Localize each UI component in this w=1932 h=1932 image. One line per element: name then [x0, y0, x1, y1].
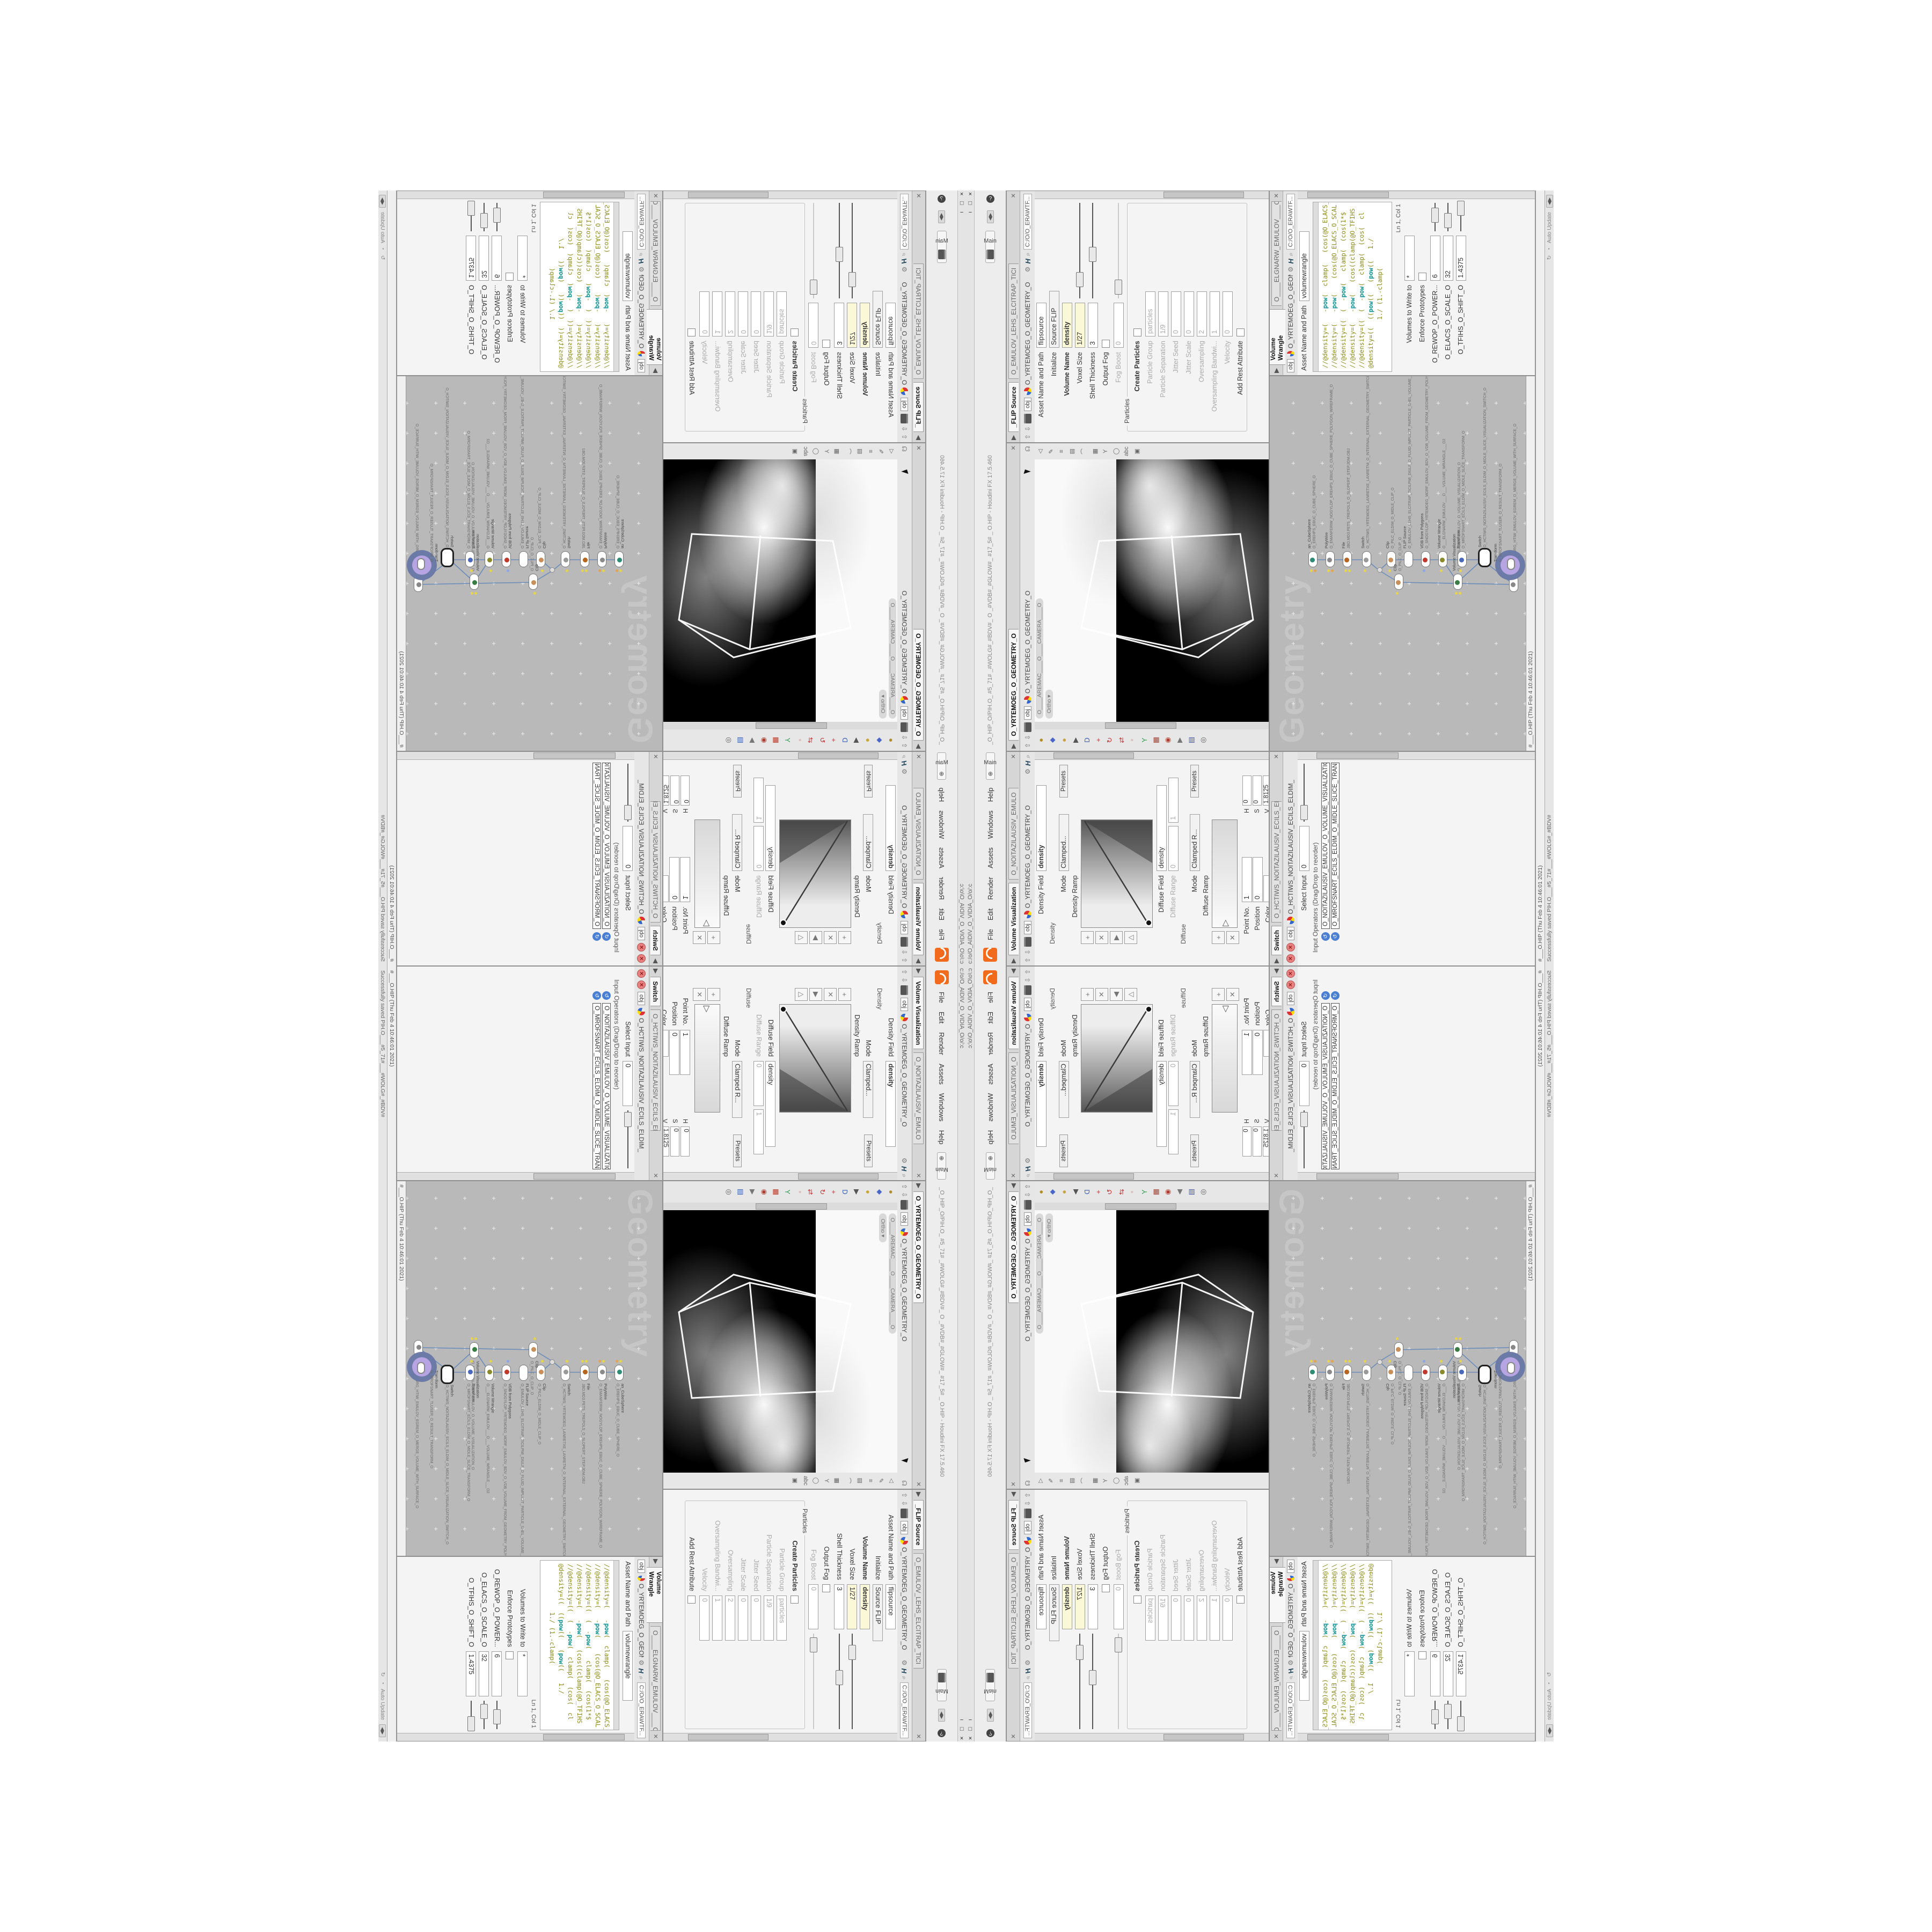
tab-switch[interactable]: Switch	[1271, 977, 1282, 1006]
display-option-icon[interactable]: abc	[802, 1476, 809, 1485]
param-slider[interactable]	[480, 1701, 488, 1729]
camera-selector[interactable]: O____AREMAC____O____CAMERA____O	[889, 598, 896, 719]
param-value-field[interactable]: 0	[751, 1596, 762, 1641]
density-mode-dropdown[interactable]: Clamped...	[863, 814, 874, 871]
tab-node-path[interactable]: O____ELGNARW_EMULOV____O	[651, 201, 661, 306]
presets-button[interactable]: Presets	[733, 765, 742, 797]
scrollbar[interactable]	[1035, 191, 1269, 199]
diffuse-mode-dropdown[interactable]: Clamped R...	[733, 1061, 743, 1118]
v-input[interactable]: 1.8125	[663, 1126, 669, 1157]
tab-node-path[interactable]: O_NOITAZILAUSIV_EMULO	[1008, 788, 1019, 879]
ramp-flip-button[interactable]: ▶	[809, 988, 822, 1001]
param-value-field[interactable]: particles	[777, 291, 787, 336]
density-ramp-gradient[interactable]	[779, 1004, 851, 1113]
viewport-tool-icon[interactable]: ▦	[1152, 1189, 1160, 1195]
network-node[interactable]: Volume WrangleO___ELGNARW_EMULOV___O___V…	[1438, 1365, 1447, 1381]
param-value-field[interactable]: 6	[492, 236, 502, 281]
viewport-tool-icon[interactable]: ▶	[1071, 1189, 1080, 1195]
context-badge[interactable]: obj	[1024, 921, 1031, 934]
display-option-icon[interactable]: ≡	[1058, 450, 1065, 453]
checkbox[interactable]	[1102, 1584, 1110, 1592]
reorder-icon[interactable]: ↺	[1321, 932, 1330, 941]
display-option-icon[interactable]: ▦	[1092, 449, 1099, 454]
viewport-tool-icon[interactable]: ▶	[1175, 737, 1184, 743]
reorder-icon[interactable]: ↺	[1331, 991, 1340, 1000]
pane-menu-icon[interactable]: ▶	[1009, 969, 1017, 974]
density-ramp-gradient[interactable]	[779, 819, 851, 928]
pin-icon[interactable]: ☊	[1024, 446, 1031, 452]
pane-arrows[interactable]: ◀▶	[987, 1709, 994, 1722]
cook-mode-icon[interactable]: ◔	[379, 247, 386, 251]
param-value-field[interactable]: 6	[1430, 1651, 1440, 1696]
viewport-tool-icon[interactable]: ●	[1037, 738, 1045, 742]
viewport-tool-icon[interactable]: Y	[1140, 738, 1148, 743]
menu-assets[interactable]: Assets	[986, 847, 994, 868]
menu-help[interactable]: Help	[938, 1130, 946, 1145]
network-node[interactable]: FLIP SourceO_EMULOV_LEHS_ELCITRAP_TICILP…	[1404, 551, 1413, 567]
menu-edit[interactable]: Edit	[986, 1012, 994, 1023]
help-icon[interactable]: ?	[986, 195, 994, 203]
ramp-add-point-button[interactable]: +	[1212, 931, 1225, 944]
network-node[interactable]: FLIP SourceO_EMULOV_LEHS_ELCITRAP_TICILP…	[519, 1365, 528, 1381]
pane-menu-icon[interactable]: ▶	[652, 368, 660, 373]
param-value-field[interactable]: 0	[809, 303, 819, 348]
param-value-field[interactable]: 1	[713, 1596, 723, 1641]
network-editor-pane[interactable]: Geometry +++++++++++++++++++++++++++++++…	[397, 1181, 663, 1556]
network-node[interactable]: ClipO_PILC_O_CLIP_O	[1394, 1342, 1403, 1358]
asset-path-field[interactable]: C:/O/O_ERAWTF...	[637, 1682, 646, 1738]
viewport-tool-icon[interactable]: ◉	[1163, 737, 1172, 743]
up-arrow-icon[interactable]: ⇧	[901, 434, 908, 440]
viewport-scrollbar[interactable]	[663, 721, 897, 729]
param-slider[interactable]	[1457, 1701, 1465, 1729]
asset-path-field[interactable]: C:/O/O_ERAWTF...	[637, 194, 646, 250]
code-scrollbar[interactable]	[613, 1561, 619, 1730]
network-node[interactable]: SwitchO_HCTIWS_YRTEMOEG_LANRETXE_LANRETN…	[561, 1365, 570, 1381]
cook-mode-icon[interactable]: ◔	[1546, 247, 1553, 251]
pane-close-icon[interactable]: ✕	[1273, 1734, 1280, 1739]
up-arrow-icon[interactable]: ⇧	[901, 743, 908, 748]
scrollbar[interactable]	[1298, 1172, 1535, 1180]
network-node[interactable]	[1377, 1359, 1382, 1365]
select-input-field[interactable]: 0	[623, 826, 633, 871]
density-mode-dropdown[interactable]: Clamped...	[1059, 814, 1069, 871]
param-slider[interactable]	[1088, 203, 1097, 298]
reorder-icon[interactable]: ↺	[1331, 932, 1340, 941]
gear-icon[interactable]: ⚙	[901, 769, 908, 774]
tab-volume-wrangle[interactable]: Volume Wrangle	[1269, 1567, 1285, 1623]
param-value-field[interactable]: 1/9	[1158, 291, 1168, 336]
up-arrow-icon[interactable]: ⇧	[901, 1184, 908, 1189]
tab-volume-visualization[interactable]: Volume Visualization	[1008, 883, 1019, 955]
network-node[interactable]: SwitchO_HCTIWS_YRTEMOEG_LANRETXE_LANRETN…	[561, 551, 570, 567]
viewport-tool-icon[interactable]: ⇄	[806, 737, 815, 743]
viewport-tool-icon[interactable]: ▶	[1071, 737, 1080, 743]
checkbox[interactable]	[791, 1596, 799, 1604]
viewport-tool-icon[interactable]: ◉	[760, 1189, 769, 1195]
network-node[interactable]: Volume VisualizationO_NOITAZILAUSIV_EMUL…	[470, 574, 479, 590]
ramp-delete-point-button[interactable]: ✕	[824, 931, 837, 944]
position-input[interactable]: 0	[670, 1030, 680, 1075]
auto-update-mode[interactable]: Auto Update	[379, 212, 386, 243]
minimize-button[interactable]: −	[968, 209, 971, 215]
tab-node-path[interactable]: O____ELGNARW_EMULOV____O	[1271, 1626, 1282, 1731]
param-value-field[interactable]: 1	[1210, 1596, 1220, 1641]
param-value-field[interactable]: 3	[835, 303, 845, 348]
select-input-field[interactable]: 0	[1299, 1061, 1309, 1106]
viewport-tool-icon[interactable]: +	[830, 738, 838, 742]
camera-selector[interactable]: O____AREMAC____O____CAMERA____O	[1036, 598, 1043, 719]
pane-close-icon[interactable]: ✕	[1010, 1173, 1017, 1178]
asset-path-field[interactable]: C:/O/O_ERAWTF...	[1023, 1682, 1032, 1738]
scrollbar[interactable]	[1298, 1733, 1535, 1741]
viewport-tool-icon[interactable]: ↻	[1106, 1189, 1114, 1195]
presets-button[interactable]: Presets	[733, 1135, 742, 1167]
point-no-input[interactable]: 1	[680, 857, 691, 902]
presets-button[interactable]: Presets	[1190, 1135, 1199, 1167]
diffuse-ramp-widget[interactable]: + ✕ ▷	[1212, 764, 1239, 944]
checkbox[interactable]	[688, 328, 696, 336]
network-node[interactable]: TransformO_MROFSNART_ECILS_ELDIM_O_MIDLE…	[1458, 551, 1467, 567]
viewport-tool-icon[interactable]: ▶	[748, 737, 757, 743]
pane-menu-icon[interactable]: ▶	[1272, 969, 1280, 974]
diffuse-ramp-gradient[interactable]: ▷	[694, 819, 720, 928]
ramp-add-point-button[interactable]: +	[1081, 988, 1094, 1001]
asset-name-field[interactable]: volumewrangle	[1299, 1631, 1309, 1701]
network-node[interactable]: TransformO_MROFSNART_ECILS_ELDIM_O_MIDLE…	[465, 551, 474, 567]
desktop-selector[interactable]: Main	[937, 1669, 947, 1701]
network-node[interactable]: Volume WrangleO___ELGNARW_EMULOV___O___V…	[485, 1365, 494, 1381]
param-value-field[interactable]: 0	[751, 291, 762, 336]
input-operator-item[interactable]: ↺O_MROFSNART_ECILS_ELDIM_O_MIDLE_SLICE_T…	[592, 991, 601, 1173]
viewport-render-area[interactable]: O____AREMAC____O____CAMERA____O Ortho ▾	[1035, 459, 1269, 722]
param-value-field[interactable]: *	[1404, 236, 1415, 281]
position-input[interactable]: 0	[670, 857, 680, 902]
viewport-render-area[interactable]: O____AREMAC____O____CAMERA____O Ortho ▾	[663, 459, 897, 722]
param-value-field[interactable]: density	[1062, 1584, 1072, 1629]
up-arrow-icon[interactable]: ⇧	[1024, 1184, 1031, 1189]
viewport-tool-icon[interactable]: *	[1129, 738, 1137, 741]
param-value-field[interactable]: 6	[1430, 236, 1440, 281]
viewport-tool-icon[interactable]: D	[841, 737, 849, 742]
gear-icon[interactable]: ⚙	[1024, 1660, 1031, 1666]
h-input[interactable]: 0	[1242, 775, 1252, 806]
menu-render[interactable]: Render	[986, 1032, 994, 1055]
param-slider[interactable]	[1444, 1701, 1452, 1729]
ortho-selector[interactable]: Ortho ▾	[879, 690, 887, 719]
pane-arrows[interactable]: ◀▶	[987, 210, 994, 223]
scrollbar[interactable]	[397, 191, 634, 199]
checkbox[interactable]	[506, 273, 514, 281]
density-mode-dropdown[interactable]: Clamped...	[1059, 1061, 1069, 1118]
menu-file[interactable]: File	[938, 992, 946, 1003]
param-slider[interactable]	[835, 1634, 844, 1729]
viewport-tool-icon[interactable]: ◉	[760, 737, 769, 743]
param-slider[interactable]	[809, 203, 818, 298]
select-input-slider[interactable]	[624, 1110, 632, 1168]
up-arrow-icon[interactable]: ⇧	[901, 1492, 908, 1498]
point-no-input[interactable]: 1	[1242, 857, 1252, 902]
param-slider[interactable]	[1075, 1634, 1084, 1729]
pane-close-icon[interactable]: ✕	[1273, 193, 1280, 198]
breadcrumb[interactable]: O_YRTEMOEG_O_GEOMETRY_O	[1024, 591, 1031, 694]
param-value-field[interactable]: 2	[726, 291, 736, 336]
pane-menu-icon[interactable]: ▶	[1009, 435, 1017, 440]
vex-code-editor[interactable]: //@density=( -pow( clamp( (cos(@O_ELACS_…	[1313, 202, 1392, 372]
pane-close-icon[interactable]: ✕	[1010, 193, 1017, 198]
menu-help[interactable]: Help	[938, 787, 946, 802]
network-node[interactable]: an_CubeSphereO_EREHPS_EBUC_O_CUBE_SPHERE…	[614, 551, 624, 567]
close-button[interactable]: ×	[968, 1735, 971, 1741]
pane-arrows[interactable]: ◀▶	[939, 210, 946, 223]
tab-geometry[interactable]: O_YRTEMOEG_O_GEOMETRY_O	[914, 1191, 924, 1303]
tab-node-path[interactable]: O_HCTIWS_NOITAZILAUSIV_ECILS_EL	[1271, 1009, 1282, 1131]
down-arrow-icon[interactable]: ⇩	[1024, 1192, 1031, 1197]
down-arrow-icon[interactable]: ⇩	[1024, 1501, 1031, 1506]
pane-close-icon[interactable]: ✕	[1010, 1482, 1017, 1487]
network-node[interactable]: FileJBO.MD3.PETS_TREPOLS_O_SLOPERT_STEP.…	[580, 551, 589, 567]
network-node[interactable]: Volume WrangleO___ELGNARW_EMULOV___O___V…	[485, 551, 494, 567]
param-value-field[interactable]: 0	[1184, 1596, 1194, 1641]
color-swatch[interactable]	[1263, 1030, 1269, 1057]
tab-node-path[interactable]: O_HCTIWS_NOITAZILAUSIV_ECILS_EL	[651, 1009, 661, 1131]
down-arrow-icon[interactable]: ⇩	[901, 426, 908, 431]
magnifier-icon[interactable]: ⌕	[901, 755, 909, 758]
ramp-add-point-button[interactable]: +	[838, 988, 851, 1001]
input-operator-item[interactable]: ↺O_NOITAZILAUSIV_EMULOV_O_VOLUME_VISUALI…	[1321, 759, 1330, 941]
pane-close-icon[interactable]: ✕	[1010, 754, 1017, 759]
gear-icon[interactable]: ⚙	[901, 266, 908, 272]
color-swatch[interactable]	[663, 1030, 669, 1057]
param-slider[interactable]	[1431, 1701, 1439, 1729]
viewport-tool-icon[interactable]: ▦	[772, 737, 780, 743]
param-value-field[interactable]: 32	[1443, 1651, 1453, 1696]
viewport-tool-icon[interactable]: ▦	[772, 1189, 780, 1195]
reorder-icon[interactable]: ↺	[1321, 991, 1330, 1000]
param-value-field[interactable]: 1	[713, 291, 723, 336]
param-slider[interactable]	[848, 1634, 857, 1729]
checkbox[interactable]	[1133, 328, 1141, 336]
refresh-icon[interactable]: ↻	[1546, 1672, 1553, 1677]
pin-icon[interactable]: ☊	[901, 446, 908, 452]
checkbox[interactable]	[791, 328, 799, 336]
context-badge[interactable]: obj	[638, 1560, 645, 1573]
reorder-icon[interactable]: ↺	[592, 932, 601, 941]
density-ramp-widget[interactable]: + ✕ ▶ △	[779, 988, 851, 1168]
display-option-icon[interactable]: ▦	[833, 449, 840, 454]
breadcrumb[interactable]: O_YRTEMOEG_O_GEOMETRY_O	[901, 1547, 908, 1650]
context-badge[interactable]: obj	[638, 927, 645, 940]
display-option-icon[interactable]: ✎	[877, 1478, 884, 1483]
s-input[interactable]: 0	[670, 1126, 679, 1157]
magnifier-icon[interactable]: ⌕	[901, 252, 909, 256]
pane-close-icon[interactable]: ✕	[653, 1734, 660, 1739]
magnifier-icon[interactable]: ⌕	[1024, 755, 1032, 758]
gear-icon[interactable]: ⚙	[1287, 1660, 1294, 1666]
param-value-field[interactable]: 3	[1088, 1584, 1098, 1629]
density-ramp-widget[interactable]: + ✕ ▶ △	[1081, 988, 1153, 1168]
tab-flip-source[interactable]: _FLIP Source	[1008, 1500, 1019, 1549]
code-scrollbar[interactable]	[1313, 1561, 1319, 1730]
network-node[interactable]: FileJBO.MD3.PETS_TREPOLS_O_SLOPERT_STEP.…	[580, 1365, 589, 1381]
display-option-icon[interactable]: ▤	[857, 449, 863, 454]
display-option-icon[interactable]: ◯	[813, 448, 819, 455]
menu-edit[interactable]: Edit	[938, 909, 946, 920]
ramp-add-point-button[interactable]: +	[707, 988, 720, 1001]
desktop-selector[interactable]: Main	[937, 231, 947, 263]
display-option-icon[interactable]: ≡	[867, 450, 874, 453]
breadcrumb[interactable]: O_YRTEMOEG_O_GEOMETRY_O	[1024, 806, 1031, 909]
viewport-tool-icon[interactable]: ●	[1060, 1190, 1068, 1194]
diffuse-mode-dropdown[interactable]: Clamped R...	[1190, 814, 1200, 871]
param-value-field[interactable]: 3	[835, 1584, 845, 1629]
take-selector[interactable]: ⊕ Main	[938, 752, 947, 780]
network-node[interactable]: VDB from PolygonsO_SNOGYLOP_YRTEMOEG_MOR…	[502, 551, 511, 567]
network-editor-pane[interactable]: Geometry +++++++++++++++++++++++++++++++…	[397, 376, 663, 751]
tab-node-path[interactable]: O_NOITAZILAUSIV_EMULO	[914, 1052, 924, 1144]
viewport-tool-icon[interactable]: ●	[887, 1190, 895, 1194]
breadcrumb[interactable]: O_YRTEMOEG_O_GEOMETRY_O	[638, 1584, 645, 1657]
asset-name-field[interactable]: volumewrangle	[1299, 231, 1309, 301]
network-node[interactable]: PolyWireO_EMANFERIW_NOGYLOP_EREHPS_EBUC_…	[597, 1365, 606, 1381]
network-node[interactable]: ClipO_PILC_O_CLIP_O	[529, 574, 538, 590]
gear-icon[interactable]: ⚙	[901, 1158, 908, 1163]
down-arrow-icon[interactable]: ⇩	[1024, 949, 1031, 955]
param-value-field[interactable]: Source FLIP	[873, 291, 883, 348]
menu-windows[interactable]: Windows	[938, 1093, 946, 1122]
pane-close-icon[interactable]: ✕	[1273, 1173, 1280, 1178]
asset-path-field[interactable]: C:/O/O_ERAWTF...	[900, 1682, 909, 1738]
scrollbar[interactable]	[1298, 191, 1535, 199]
param-slider[interactable]	[1114, 203, 1123, 298]
desktop-selector[interactable]: Main	[985, 231, 995, 263]
diffuse-ramp-widget[interactable]: + ✕ ▷	[693, 764, 720, 944]
ramp-add-point-button[interactable]: +	[838, 931, 851, 944]
auto-update-mode[interactable]: Auto Update	[379, 1689, 386, 1720]
param-value-field[interactable]: *	[1404, 1651, 1415, 1696]
diffuse-ramp-gradient[interactable]: ▷	[1212, 1004, 1238, 1113]
minimize-button[interactable]: −	[968, 1717, 971, 1723]
input-operator-item[interactable]: ↺O_NOITAZILAUSIV_EMULOV_O_VOLUME_VISUALI…	[602, 759, 611, 941]
update-mode-arrows[interactable]: ◀▶	[1546, 1724, 1553, 1737]
pin-icon[interactable]: ☊	[901, 1480, 908, 1486]
param-slider[interactable]	[809, 1634, 818, 1729]
display-option-icon[interactable]: ⌒	[844, 1478, 853, 1484]
param-value-field[interactable]: 32	[1443, 236, 1453, 281]
input-operator-item[interactable]: ↺O_MROFSNART_ECILS_ELDIM_O_MIDLE_SLICE_T…	[592, 759, 601, 941]
display-option-icon[interactable]: ⌒	[844, 449, 853, 455]
checkbox[interactable]	[688, 1596, 696, 1604]
viewport-tool-icon[interactable]: ⇄	[1117, 737, 1126, 743]
display-option-icon[interactable]: abc	[802, 447, 809, 456]
pane-close-icon[interactable]: ✕	[653, 193, 660, 198]
context-badge[interactable]: obj	[1287, 992, 1294, 1005]
scrollbar[interactable]	[397, 1733, 634, 1741]
breadcrumb[interactable]: O_YRTEMOEG_O_GEOMETRY_O	[1024, 1024, 1031, 1127]
viewport-tool-icon[interactable]: +	[1094, 738, 1102, 742]
v-input[interactable]: 1.8125	[1263, 1126, 1269, 1157]
menu-windows[interactable]: Windows	[986, 1093, 994, 1122]
context-badge[interactable]: obj	[901, 1212, 908, 1226]
asset-name-field[interactable]: volumewrangle	[623, 1631, 633, 1701]
asset-path-field[interactable]: C:/O/O_ERAWTF...	[900, 194, 909, 250]
param-value-field[interactable]: 0	[1171, 291, 1181, 336]
display-option-icon[interactable]: ◯	[813, 1477, 819, 1484]
display-option-icon[interactable]: ◯	[1113, 1477, 1119, 1484]
pane-menu-icon[interactable]: ▶	[652, 1559, 660, 1564]
diffuse-ramp-widget[interactable]: + ✕ ▷	[1212, 988, 1239, 1168]
context-badge[interactable]: obj	[638, 992, 645, 1005]
reorder-icon[interactable]: ↺	[602, 932, 611, 941]
param-slider[interactable]	[480, 203, 488, 231]
viewport-tool-icon[interactable]: +	[830, 1190, 838, 1194]
pane-close-icon[interactable]: ✕	[653, 1173, 660, 1178]
param-value-field[interactable]: 1/27	[847, 303, 858, 348]
param-slider[interactable]	[467, 203, 475, 231]
reorder-icon[interactable]: ↺	[592, 991, 601, 1000]
network-node[interactable]: SwitchO_HCTIWS_NOITAZILAUSIV_ECILS_ELDIM…	[1478, 1365, 1491, 1384]
up-arrow-icon[interactable]: ⇧	[1024, 434, 1031, 440]
tab-flip-source[interactable]: _FLIP Source	[914, 1500, 924, 1549]
maximize-button[interactable]: □	[968, 1725, 972, 1732]
presets-button[interactable]: Presets	[1190, 765, 1199, 797]
viewport-tool-icon[interactable]: Y	[784, 738, 792, 743]
magnifier-icon[interactable]: ⌕	[901, 1676, 909, 1680]
cook-mode-icon[interactable]: ◔	[1546, 1681, 1553, 1684]
diffuse-mode-dropdown[interactable]: Clamped R...	[733, 814, 743, 871]
down-arrow-icon[interactable]: ⇩	[901, 949, 908, 955]
context-badge[interactable]: obj	[901, 706, 908, 720]
menu-assets[interactable]: Assets	[938, 847, 946, 868]
display-option-icon[interactable]: ▤	[1069, 1478, 1075, 1483]
ortho-selector[interactable]: Ortho ▾	[879, 1213, 887, 1242]
checkbox[interactable]	[1102, 340, 1110, 348]
display-option-icon[interactable]: ◁	[1037, 1479, 1044, 1483]
v-input[interactable]: 1.8125	[1263, 775, 1269, 806]
select-input-slider[interactable]	[1300, 1110, 1308, 1168]
density-field-input[interactable]: density	[886, 785, 896, 871]
tab-node-path[interactable]: O_NOITAZILAUSIV_EMULO	[914, 788, 924, 879]
network-node[interactable]	[550, 567, 555, 573]
checkbox[interactable]	[1236, 1596, 1245, 1604]
param-value-field[interactable]: 1/27	[847, 1584, 858, 1629]
pane-close-icon[interactable]: ✕	[1010, 445, 1017, 450]
density-ramp-widget[interactable]: + ✕ ▶ △	[1081, 764, 1153, 944]
param-value-field[interactable]: 0	[700, 1596, 710, 1641]
breadcrumb[interactable]: O_YRTEMOEG_O_GEOMETRY_O	[1024, 282, 1031, 385]
tab-geometry[interactable]: O_YRTEMOEG_O_GEOMETRY_O	[914, 629, 924, 741]
param-value-field[interactable]: Source FLIP	[873, 1584, 883, 1641]
tab-node-path[interactable]: O____ELGNARW_EMULOV____O	[651, 1626, 661, 1731]
param-value-field[interactable]: 1	[1210, 291, 1220, 336]
menu-edit[interactable]: Edit	[938, 1012, 946, 1023]
reorder-icon[interactable]: ↺	[602, 991, 611, 1000]
input-operator-item[interactable]: ↺O_NOITAZILAUSIV_EMULOV_O_VOLUME_VISUALI…	[1321, 991, 1330, 1173]
tab-geometry[interactable]: O_YRTEMOEG_O_GEOMETRY_O	[1008, 629, 1019, 741]
ramp-flip-button[interactable]: ▶	[1110, 988, 1123, 1001]
context-badge[interactable]: obj	[901, 921, 908, 934]
up-arrow-icon[interactable]: ⇧	[1024, 743, 1031, 748]
network-node[interactable]: an_CubeSphereO_EREHPS_EBUC_O_CUBE_SPHERE…	[614, 1365, 624, 1381]
camera-selector[interactable]: O____AREMAC____O____CAMERA____O	[1036, 1213, 1043, 1334]
h-input[interactable]: 0	[680, 1126, 690, 1157]
param-value-field[interactable]: 0	[738, 291, 749, 336]
ortho-selector[interactable]: Ortho ▾	[1045, 1213, 1053, 1242]
diffuse-field-input[interactable]: density	[766, 785, 776, 871]
ramp-point-marker[interactable]	[1145, 919, 1152, 926]
menu-render[interactable]: Render	[938, 877, 946, 900]
network-node[interactable]: PolyWireO_EMANFERIW_NOGYLOP_EREHPS_EBUC_…	[1326, 551, 1335, 567]
